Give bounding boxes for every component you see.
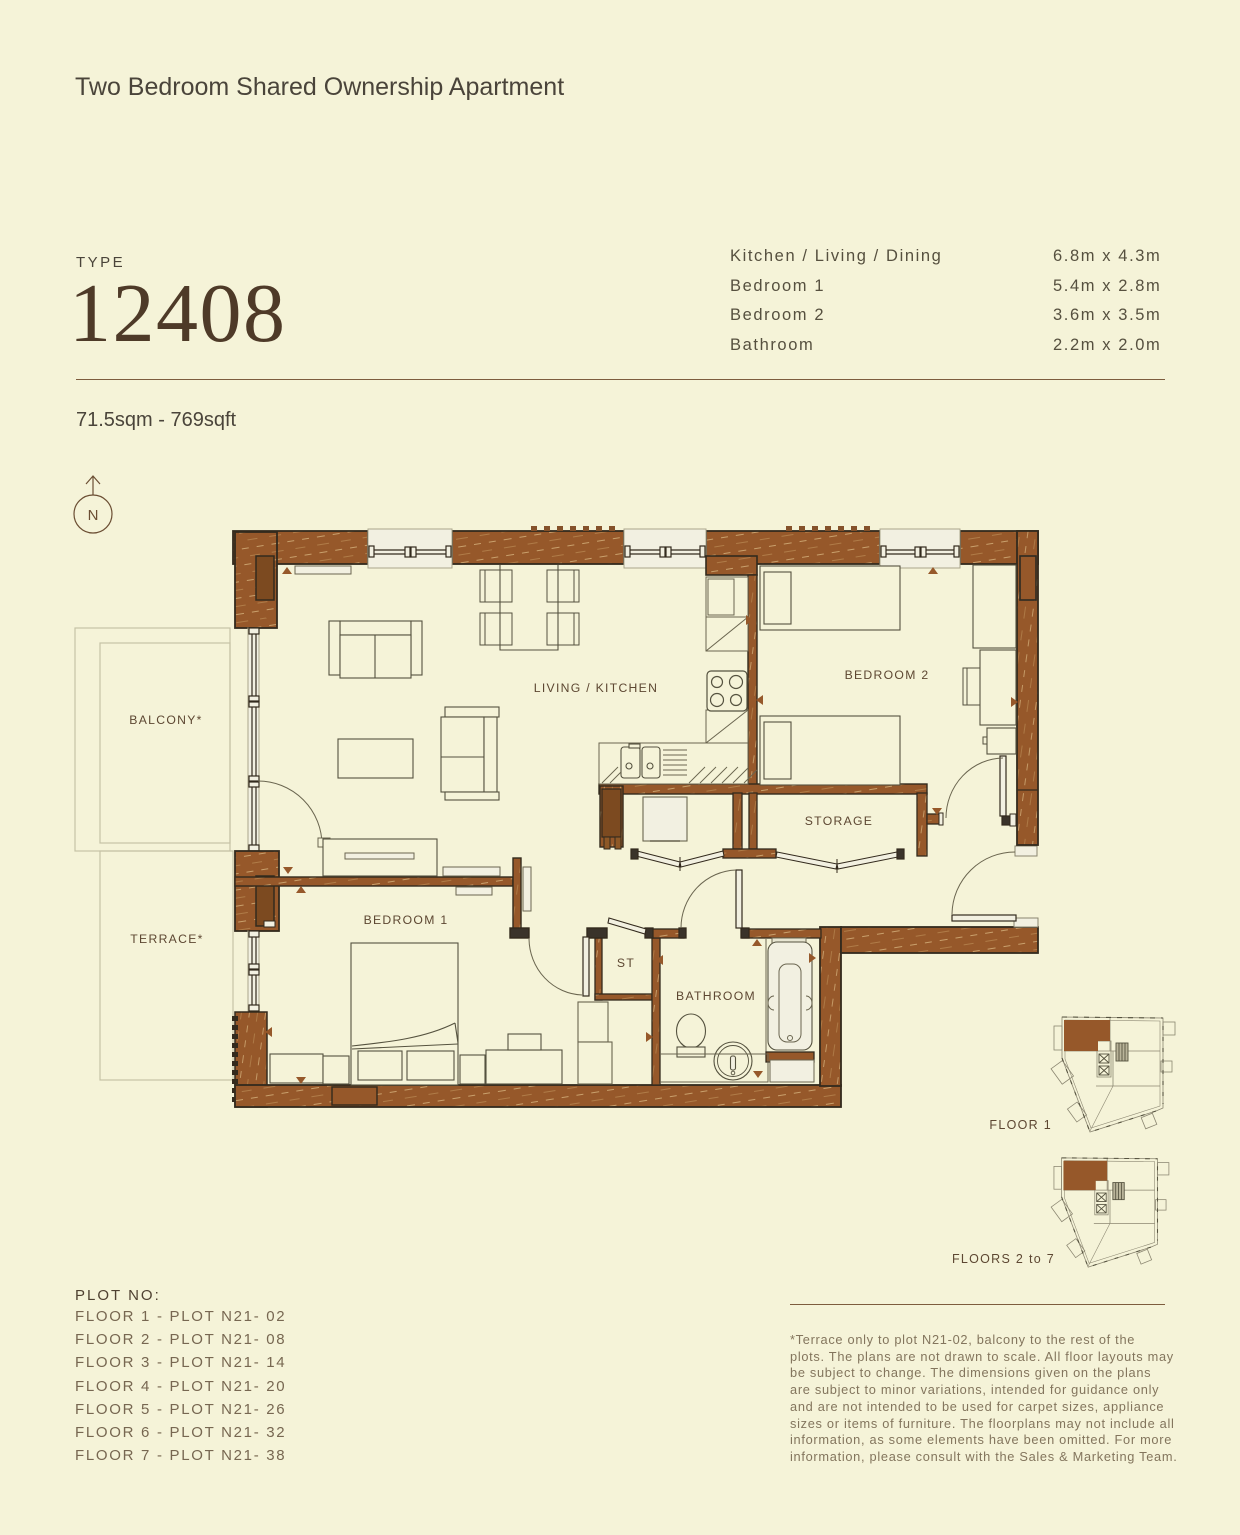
svg-text:TERRACE*: TERRACE* <box>130 932 203 946</box>
svg-text:BALCONY*: BALCONY* <box>129 713 202 727</box>
svg-text:BEDROOM 1: BEDROOM 1 <box>364 913 449 927</box>
svg-text:STORAGE: STORAGE <box>805 814 873 828</box>
svg-text:FLOORS 2 to 7: FLOORS 2 to 7 <box>952 1252 1055 1266</box>
svg-text:N: N <box>88 507 99 524</box>
svg-text:LIVING / KITCHEN: LIVING / KITCHEN <box>534 681 658 695</box>
svg-text:ST: ST <box>617 956 635 970</box>
svg-text:BEDROOM 2: BEDROOM 2 <box>845 668 930 682</box>
svg-text:FLOOR 1: FLOOR 1 <box>989 1118 1052 1132</box>
svg-text:BATHROOM: BATHROOM <box>676 989 756 1003</box>
